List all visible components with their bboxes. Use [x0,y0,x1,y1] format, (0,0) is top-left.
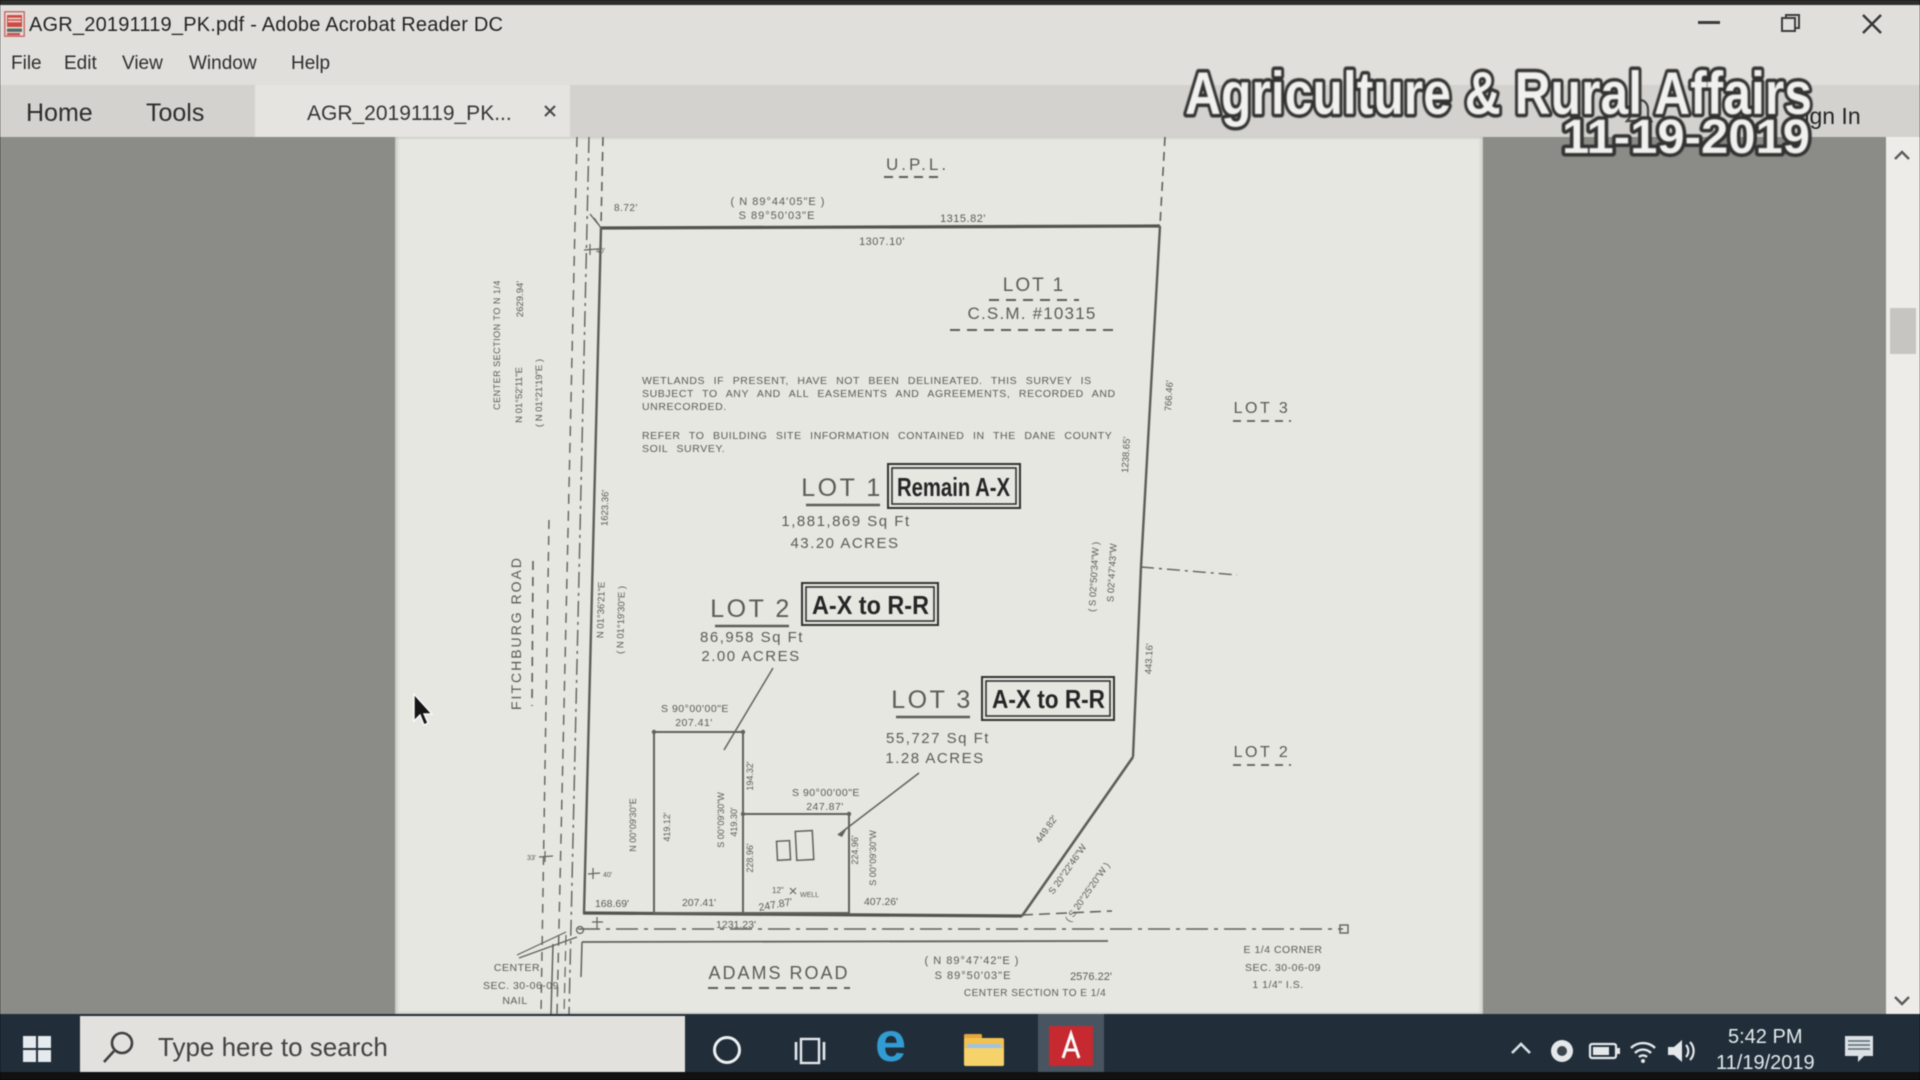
svg-text:WELL: WELL [800,892,819,899]
svg-text:( N 01°19'30"E ): ( N 01°19'30"E ) [615,586,628,654]
svg-text:247.87': 247.87' [806,801,844,813]
svg-text:1315.82': 1315.82' [940,213,986,225]
svg-text:8.72': 8.72' [614,203,638,214]
svg-text:FITCHBURG ROAD: FITCHBURG ROAD [508,556,524,710]
svg-text:207.41': 207.41' [682,897,716,909]
svg-text:S 89°50'03"E: S 89°50'03"E [739,210,816,222]
svg-text:11-19-2019: 11-19-2019 [1562,111,1810,164]
svg-text:S 02°47'43"W: S 02°47'43"W [1105,543,1119,602]
svg-text:419.12': 419.12' [662,812,672,842]
svg-text:( N 89°47'42"E ): ( N 89°47'42"E ) [925,955,1020,967]
svg-text:247.87': 247.87' [758,896,794,914]
svg-text:33': 33' [527,855,536,862]
svg-text:766.46': 766.46' [1163,380,1176,412]
svg-text:40': 40' [603,872,612,879]
svg-text:S 00°09'30"W: S 00°09'30"W [868,830,878,886]
svg-text:194.32': 194.32' [745,761,755,791]
svg-text:S 89°50'03"E: S 89°50'03"E [935,970,1012,982]
svg-text:CENTER: CENTER [494,962,540,974]
svg-text:E 1/4 CORNER: E 1/4 CORNER [1244,944,1323,956]
svg-text:N 00°09'30"E: N 00°09'30"E [628,798,638,852]
svg-text:40': 40' [596,248,605,255]
svg-text:LOT 3: LOT 3 [891,686,973,714]
svg-text:SEC. 30-06-09: SEC. 30-06-09 [1245,962,1321,974]
svg-text:ADAMS ROAD: ADAMS ROAD [708,963,849,983]
svg-text:1 1/4" I.S.: 1 1/4" I.S. [1252,979,1303,991]
svg-text:REFER TO BUILDING SITE INFORMA: REFER TO BUILDING SITE INFORMATION CONTA… [642,430,1112,442]
svg-text:N 01°36'21"E: N 01°36'21"E [595,582,607,639]
svg-text:( N 01°21'19"E ): ( N 01°21'19"E ) [534,359,545,427]
svg-text:SUBJECT TO ANY AND ALL EASEMEN: SUBJECT TO ANY AND ALL EASEMENTS AND AGR… [642,388,1116,400]
svg-text:SEC. 30-06-09: SEC. 30-06-09 [483,980,559,992]
svg-text:NAIL: NAIL [502,995,527,1007]
svg-text:224.96': 224.96' [850,835,860,865]
svg-text:1238.65': 1238.65' [1120,436,1133,473]
svg-text:LOT 1: LOT 1 [1003,275,1065,296]
svg-text:S 00°09'30"W: S 00°09'30"W [716,792,726,848]
svg-text:CENTER SECTION TO E 1/4: CENTER SECTION TO E 1/4 [964,988,1106,999]
svg-text:N 01°52'11"E: N 01°52'11"E [514,367,525,423]
svg-text:LOT 1: LOT 1 [801,474,883,502]
svg-text:207.41': 207.41' [675,717,713,729]
svg-text:86,958 Sq Ft: 86,958 Sq Ft [700,629,804,646]
svg-text:1231.23': 1231.23' [716,919,756,931]
svg-text:S 90°00'00"E: S 90°00'00"E [661,703,729,715]
svg-text:A-X to R-R: A-X to R-R [992,684,1105,714]
svg-text:WETLANDS IF PRESENT, HAVE NOT: WETLANDS IF PRESENT, HAVE NOT BEEN DELIN… [642,375,1092,387]
svg-text:168.69': 168.69' [595,898,629,910]
svg-text:UNRECORDED.: UNRECORDED. [642,401,727,413]
svg-text:CENTER SECTION TO N 1/4: CENTER SECTION TO N 1/4 [492,280,502,410]
svg-text:SOIL SURVEY.: SOIL SURVEY. [642,443,725,455]
svg-text:1307.10': 1307.10' [859,236,905,248]
svg-text:407.26': 407.26' [864,896,898,908]
svg-text:419.30': 419.30' [729,807,739,837]
svg-text:1,881,869 Sq Ft: 1,881,869 Sq Ft [781,513,910,530]
svg-text:LOT 2: LOT 2 [1234,744,1291,761]
svg-text:A-X to R-R: A-X to R-R [812,590,929,620]
svg-text:228.96': 228.96' [745,843,755,873]
svg-text:1623.36': 1623.36' [600,490,612,527]
svg-text:1.28 ACRES: 1.28 ACRES [885,750,984,767]
svg-text:LOT 3: LOT 3 [1234,400,1291,417]
svg-text:( S 02°50'34"W ): ( S 02°50'34"W ) [1087,541,1102,612]
svg-text:C.S.M. #10315: C.S.M. #10315 [968,304,1097,323]
svg-text:Remain A-X: Remain A-X [897,472,1011,502]
svg-text:LOT 2: LOT 2 [710,595,792,623]
svg-text:443.16': 443.16' [1143,643,1155,674]
svg-text:55,727 Sq Ft: 55,727 Sq Ft [886,730,990,747]
svg-text:2576.22': 2576.22' [1070,971,1112,983]
svg-text:2.00 ACRES: 2.00 ACRES [701,648,800,665]
svg-text:S 90°00'00"E: S 90°00'00"E [792,787,860,799]
svg-text:449.82': 449.82' [1034,814,1061,846]
svg-text:2629.94': 2629.94' [515,281,526,317]
svg-text:43.20 ACRES: 43.20 ACRES [790,535,899,552]
svg-text:12": 12" [772,886,784,895]
